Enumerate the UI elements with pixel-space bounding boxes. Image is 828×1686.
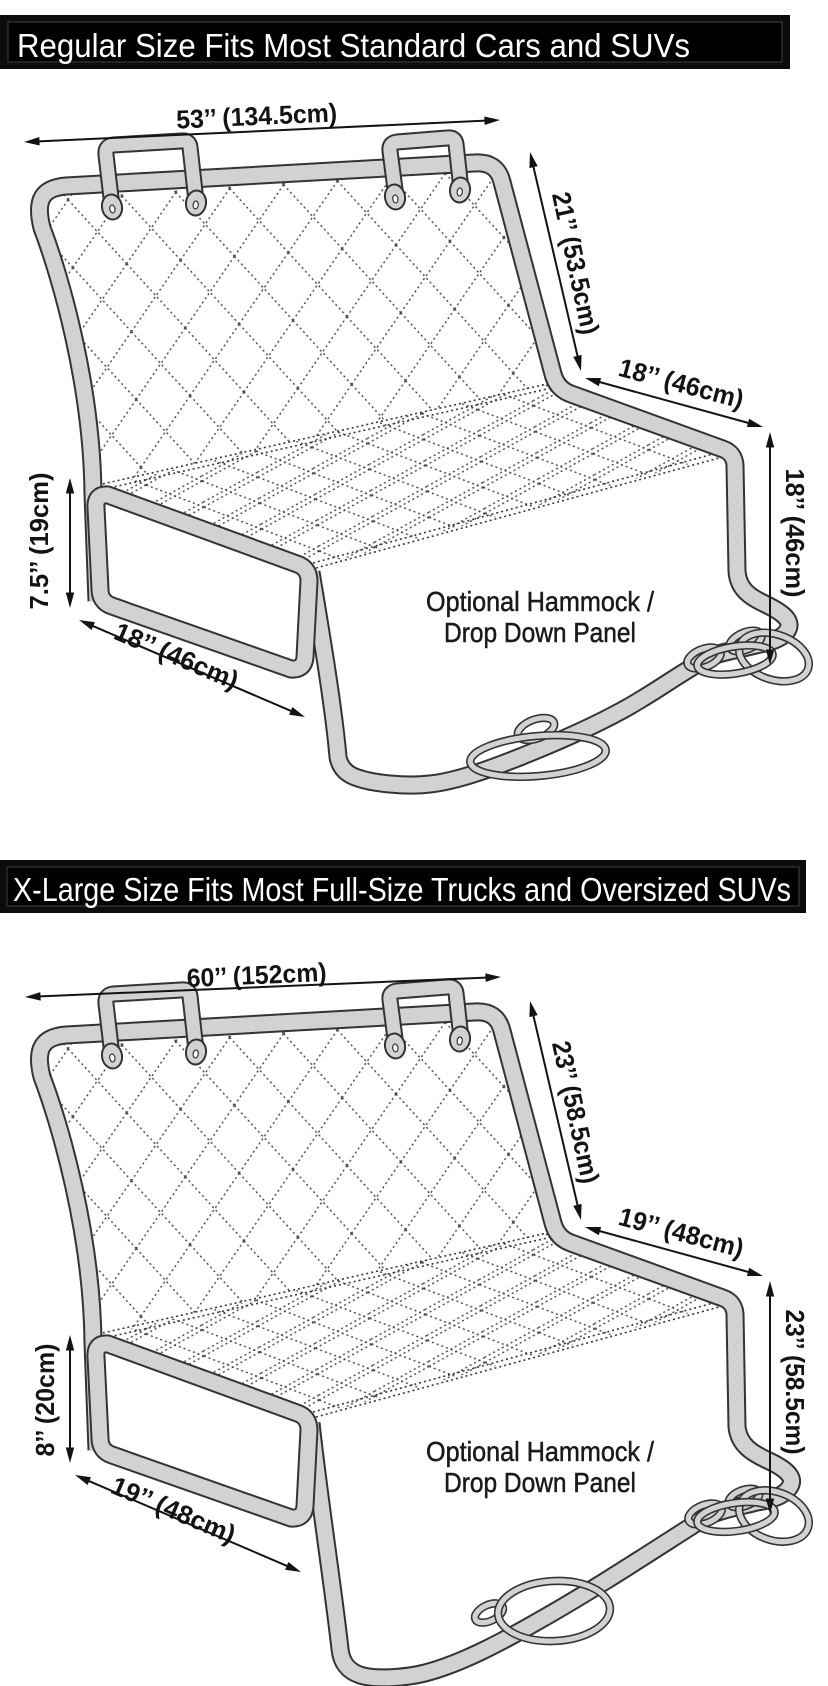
- svg-text:Optional Hammock /: Optional Hammock /: [426, 1436, 654, 1467]
- svg-text:Drop Down Panel: Drop Down Panel: [444, 617, 636, 648]
- svg-text:18’’ (46cm): 18’’ (46cm): [780, 469, 810, 598]
- svg-text:Optional Hammock /: Optional Hammock /: [426, 586, 654, 617]
- svg-text:X-Large Size Fits Most Full-Si: X-Large Size Fits Most Full-Size Trucks …: [13, 871, 791, 908]
- svg-text:23’’ (58.5cm): 23’’ (58.5cm): [780, 1310, 810, 1455]
- svg-text:8’’ (20cm): 8’’ (20cm): [30, 1344, 60, 1457]
- svg-text:Regular Size Fits Most Standar: Regular Size Fits Most Standard Cars and…: [17, 27, 690, 64]
- svg-text:Drop Down Panel: Drop Down Panel: [444, 1467, 636, 1498]
- svg-text:7.5’’ (19cm): 7.5’’ (19cm): [24, 473, 54, 610]
- svg-text:60’’ (152cm): 60’’ (152cm): [186, 957, 327, 993]
